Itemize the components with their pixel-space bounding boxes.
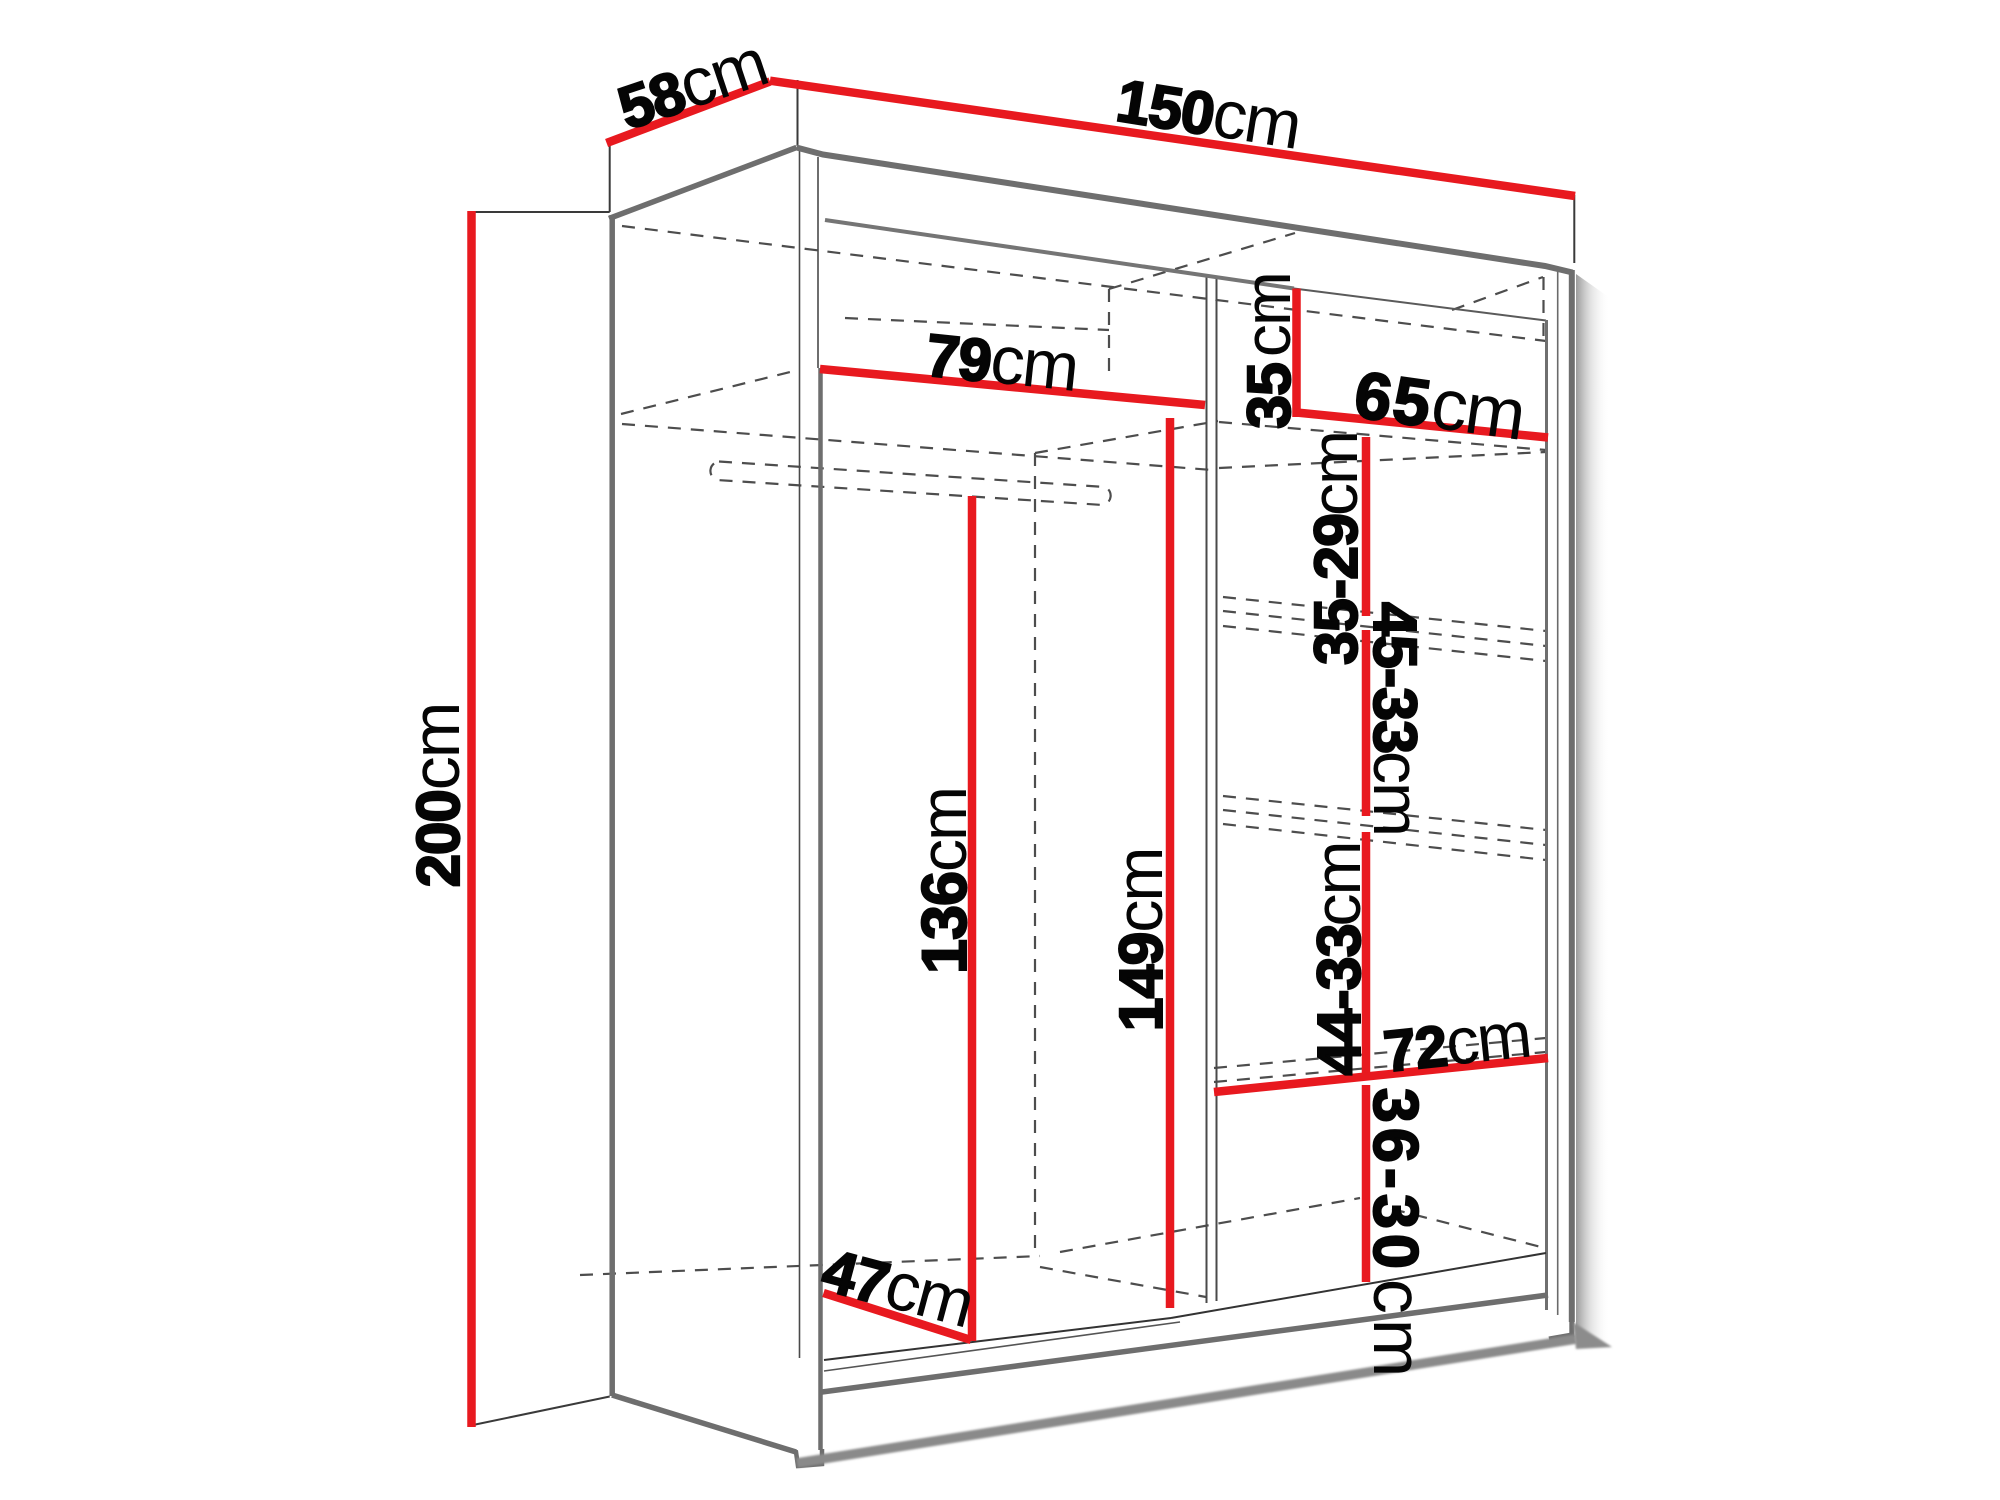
svg-text:149cm: 149cm bbox=[1102, 849, 1176, 1032]
svg-text:44-33cm: 44-33cm bbox=[1300, 843, 1374, 1076]
svg-text:136cm: 136cm bbox=[906, 788, 980, 974]
svg-text:36-30cm: 36-30cm bbox=[1359, 1088, 1437, 1382]
svg-text:45-33cm: 45-33cm bbox=[1360, 602, 1434, 835]
svg-text:200cm: 200cm bbox=[398, 704, 474, 888]
svg-text:35cm: 35cm bbox=[1230, 273, 1304, 429]
svg-text:35-29cm: 35-29cm bbox=[1297, 432, 1371, 665]
